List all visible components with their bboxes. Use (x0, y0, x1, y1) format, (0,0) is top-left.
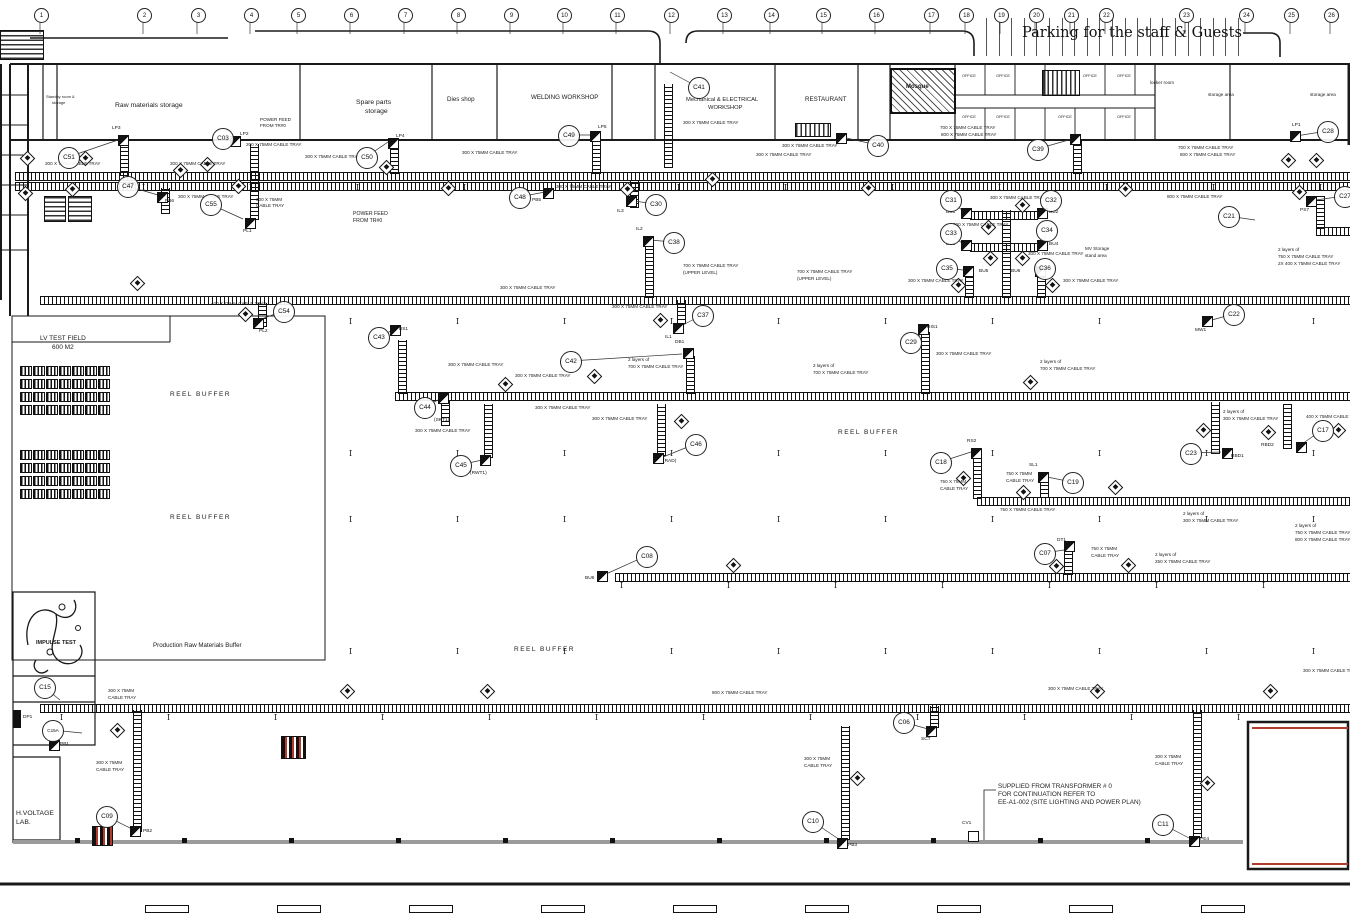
text-label: OFFICE (1083, 74, 1097, 78)
device-tag: PB2 (143, 830, 152, 835)
parking-stall-line (1011, 18, 1012, 56)
text-label: H.VOLTAGE (16, 810, 54, 817)
cable-tray-vertical (645, 246, 654, 298)
text-label: CABLE TRAY (1155, 762, 1183, 767)
text-label: 2 layers of (813, 364, 834, 369)
text-label: 400 X 75MM CABLE TRAY (1306, 415, 1350, 420)
column-mark: I (670, 516, 673, 524)
device-tag: PL1 (243, 230, 252, 235)
column-mark: I (1105, 184, 1108, 192)
cable-tray-vertical (1211, 402, 1220, 454)
text-label: OFFICE (996, 74, 1010, 78)
column-mark: I (670, 648, 673, 656)
column-mark: I (1212, 184, 1215, 192)
column-mark: I (595, 714, 598, 722)
hatched-area (795, 123, 831, 137)
grid-bubble: 13 (717, 8, 732, 23)
callout-C36: C36 (1034, 258, 1056, 280)
callout-C18: C18 (930, 452, 952, 474)
cable-tray-horizontal (615, 573, 1350, 582)
grid-bubble: 2 (137, 8, 152, 23)
text-label: 300 X 75MM CABLE TRAY (462, 151, 518, 156)
text-label: Mosque (906, 84, 929, 90)
callout-C06: C06 (893, 712, 915, 734)
exterior-bay (805, 905, 849, 913)
device-tag: BU4 (1049, 243, 1058, 248)
column-mark: I (1098, 318, 1101, 326)
text-label: 700 X 75MM CABLE TRAY (1178, 146, 1234, 151)
device-tag: DP1 (23, 716, 32, 721)
text-label: 600 M2 (52, 345, 74, 352)
callout-C34: C34 (1036, 220, 1058, 242)
exterior-bay (277, 905, 321, 913)
cable-tray-vertical (1040, 482, 1049, 498)
test-rack-icon (85, 476, 97, 486)
column-mark: I (456, 516, 459, 524)
hatched-area (0, 30, 44, 60)
test-rack-icon (85, 489, 97, 499)
column-mark: I (784, 184, 787, 192)
test-rack-icon (20, 463, 32, 473)
text-label: locker room (1150, 81, 1174, 86)
cable-tray-vertical (484, 404, 493, 458)
text-label: 700 X 75MM CABLE TRAY (797, 270, 853, 275)
callout-C51: C51 (58, 147, 80, 169)
cable-tray-vertical (120, 142, 129, 176)
device-box-icon (1306, 196, 1317, 207)
text-label: FROM TR#0 (353, 219, 382, 224)
device-box-icon (1296, 442, 1307, 453)
text-label: LV TEST FIELD (40, 336, 86, 343)
device-tag: LP2 (240, 133, 249, 138)
column-mark: I (1048, 582, 1051, 590)
wall-column-dot (75, 838, 80, 843)
text-label: REEL BUFFER (514, 647, 575, 654)
device-box-icon (683, 348, 694, 359)
callout-C35: C35 (936, 258, 958, 280)
test-rack-icon (33, 392, 45, 402)
text-label: 300 X 75MM CABLE TRAY (415, 429, 471, 434)
test-rack-icon (85, 392, 97, 402)
text-label: CABLE TRAY (1091, 554, 1119, 559)
text-label: 750 X 75MM CABLE TRAY (1000, 508, 1056, 513)
column-mark: I (884, 318, 887, 326)
column-mark: I (1205, 648, 1208, 656)
device-box-icon (1070, 134, 1081, 145)
device-tag: RS2 (967, 440, 976, 445)
test-rack-icon (72, 379, 84, 389)
test-rack-icon (98, 489, 110, 499)
text-label: 700 X 75MM CABLE TRAY (940, 126, 996, 131)
column-mark: I (456, 318, 459, 326)
grid-bubble: 6 (344, 8, 359, 23)
device-box-icon (1038, 472, 1049, 483)
callout-C10: C10 (802, 811, 824, 833)
impulse-generator-sketch (27, 600, 82, 673)
device-box-icon (438, 393, 449, 404)
test-rack-icon (20, 405, 32, 415)
test-rack-icon (33, 379, 45, 389)
text-label: 800 X 75MM CABLE TRAY (941, 133, 997, 138)
device-box-icon (961, 240, 972, 251)
device-tag: DT1 (1057, 539, 1066, 544)
device-box-icon (971, 448, 982, 459)
text-label: 750 X 75MM (1006, 472, 1032, 477)
callout-C07: C07 (1034, 543, 1056, 565)
test-rack-icon (85, 379, 97, 389)
column-mark: I (1237, 714, 1240, 722)
cable-tray-horizontal (15, 172, 1350, 181)
column-mark: I (891, 184, 894, 192)
wall-column-dot (1145, 838, 1150, 843)
text-label: Production Raw Materials Buffer (153, 643, 242, 650)
text-label: CABLE TRAY (1006, 479, 1034, 484)
grid-bubble: 4 (244, 8, 259, 23)
text-label: REEL BUFFER (838, 430, 899, 437)
text-label: storage area (1208, 93, 1234, 98)
device-box-icon (963, 266, 974, 277)
column-mark: I (702, 714, 705, 722)
text-label: MV Storage (1085, 247, 1109, 252)
callout-C29: C29 (900, 332, 922, 354)
text-label: 800 X 75MM CABLE TRAY (1180, 153, 1236, 158)
callout-C27: C27 (1334, 186, 1350, 208)
test-rack-icon (20, 476, 32, 486)
panel-block (13, 710, 21, 728)
device-box-icon (626, 196, 637, 207)
text-label: (UPPER LEVEL) (683, 271, 717, 276)
wall-column-dot (931, 838, 936, 843)
text-label: 700 X 75MM CABLE TRAY (628, 365, 684, 370)
text-label: Spare parts (356, 99, 391, 106)
callout-C55: C55 (200, 194, 222, 216)
exterior-bay (1069, 905, 1113, 913)
callout-C46: C46 (685, 434, 707, 456)
callout-C30: C30 (645, 194, 667, 216)
device-tag: SCT (921, 738, 931, 743)
parking-stall-line (999, 18, 1000, 56)
text-label: 2 layers of (1040, 360, 1061, 365)
test-rack-icon (59, 405, 71, 415)
device-tag: LP3 (112, 127, 121, 132)
test-rack-icon (20, 489, 32, 499)
device-tag: (RAD) (663, 460, 676, 465)
text-label: 300 X 75MM CABLE TRAY (500, 286, 556, 291)
test-rack-icon (98, 366, 110, 376)
text-label: storage area (1310, 93, 1336, 98)
text-label: 300 X 75MM CABLE TRAY (936, 352, 992, 357)
column-mark: I (349, 648, 352, 656)
callout-C38: C38 (663, 232, 685, 254)
column-mark: I (1130, 714, 1133, 722)
text-label: 750 X 75MM (1091, 547, 1117, 552)
text-label: Raw materials storage (115, 102, 183, 109)
text-label: OFFICE (1117, 74, 1131, 78)
callout-C49: C49 (558, 125, 580, 147)
device-tag: DB1 (675, 341, 684, 346)
grid-bubble: 23 (1179, 8, 1194, 23)
test-rack-icon (59, 476, 71, 486)
grid-bubble: 22 (1099, 8, 1114, 23)
device-tag: (SKT1) (434, 419, 449, 424)
text-label: REEL BUFFER (170, 392, 231, 399)
equipment-block (281, 736, 306, 759)
cable-tray-vertical (133, 710, 142, 832)
text-label: 700 X 75MM CABLE TRAY (683, 264, 739, 269)
text-label: Standby room & (46, 95, 75, 99)
cable-tray-vertical (841, 726, 850, 840)
text-label: 300 X 75MM (108, 689, 134, 694)
text-label: 800 X 75MM CABLE TRAY (712, 691, 768, 696)
test-rack-icon (33, 476, 45, 486)
exterior-bay (541, 905, 585, 913)
test-rack-icon (20, 450, 32, 460)
device-tag: IL3 (617, 210, 624, 215)
cable-tray-vertical (677, 300, 686, 324)
column-mark: I (998, 184, 1001, 192)
callout-C33: C33 (940, 223, 962, 245)
text-label: LAB. (16, 819, 31, 826)
cable-tray-horizontal (395, 392, 1350, 401)
text-label: OFFICE (1117, 115, 1131, 119)
test-rack-icon (46, 379, 58, 389)
text-label: 2 layers of (1155, 553, 1176, 558)
text-label: storage (365, 108, 388, 115)
device-box-icon (597, 571, 608, 582)
device-tag: (RWT1) (470, 472, 487, 477)
text-label: CABLE TRAY (96, 768, 124, 773)
parking-title: Parking for the staff & Guests (1022, 25, 1242, 41)
parking-stall-line (986, 18, 987, 56)
column-mark: I (274, 714, 277, 722)
wall-column-dot (396, 838, 401, 843)
grid-bubble: 24 (1239, 8, 1254, 23)
text-label: POWER FEED (353, 212, 388, 217)
callout-C03: C03 (212, 128, 234, 150)
text-label: WELDING WORKSHOP (531, 95, 598, 102)
text-label: 300 X 75MM CABLE TRAY (908, 279, 964, 284)
hatched-area (890, 68, 956, 114)
device-box-icon (1290, 131, 1301, 142)
hatched-area (44, 196, 66, 222)
text-label: 300 X 75MM CABLE TRAY (535, 406, 591, 411)
text-label: CABLE TRAY (940, 487, 968, 492)
column-mark: I (563, 516, 566, 524)
cable-tray-vertical (592, 140, 601, 174)
text-label: 300 X 75MM CABLE TRAY (1303, 669, 1350, 674)
column-mark: I (356, 184, 359, 192)
cable-tray-vertical (1073, 140, 1082, 174)
column-mark: I (1312, 648, 1315, 656)
grid-bubble: 25 (1284, 8, 1299, 23)
test-rack-icon (46, 392, 58, 402)
device-box-icon (837, 838, 848, 849)
text-label: 300 X 75MM CABLE TRAY (782, 144, 838, 149)
text-label: 300 X 75MM CABLE TRAY (515, 374, 571, 379)
device-tag: LP4 (396, 135, 405, 140)
wall-column-dot (1038, 838, 1043, 843)
column-mark: I (60, 714, 63, 722)
column-mark: I (1312, 318, 1315, 326)
device-tag: LP5 (598, 126, 607, 131)
text-label: OFFICE (962, 74, 976, 78)
device-box-icon (836, 133, 847, 144)
device-box-icon (1189, 836, 1200, 847)
column-mark: I (249, 184, 252, 192)
callout-C23: C23 (1180, 443, 1202, 465)
column-mark: I (620, 582, 623, 590)
test-rack-icon (46, 463, 58, 473)
column-mark: I (1262, 582, 1265, 590)
device-tag: PL2 (259, 330, 268, 335)
column-mark: I (563, 450, 566, 458)
text-label: 300 X 75MM CABLE TRAY (305, 155, 361, 160)
wall-column-dot (824, 838, 829, 843)
test-rack-icon (46, 366, 58, 376)
test-rack-icon (59, 463, 71, 473)
text-label: 300 X 75MM CABLE TRAY (990, 196, 1046, 201)
text-label: 800 X 75MM CABLE TRAY (1167, 195, 1223, 200)
cable-tray-vertical (1316, 196, 1325, 229)
device-tag: LP1 (1292, 124, 1301, 129)
exterior-bay (673, 905, 717, 913)
wall-column-dot (289, 838, 294, 843)
device-tag: PS7 (1300, 209, 1309, 214)
text-label: 300 X 75MM CABLE TRAY (1223, 417, 1279, 422)
test-rack-icon (33, 463, 45, 473)
callout-C54: C54 (273, 301, 295, 323)
test-rack-icon (72, 476, 84, 486)
grid-bubble: 9 (504, 8, 519, 23)
column-mark: I (777, 318, 780, 326)
column-mark: I (941, 582, 944, 590)
cable-tray-horizontal (977, 497, 1350, 506)
hatched-area (1042, 70, 1080, 96)
device-tag: MW1 (1195, 329, 1206, 334)
callout-C22: C22 (1223, 304, 1245, 326)
grid-bubble: 8 (451, 8, 466, 23)
column-mark: I (142, 184, 145, 192)
column-mark: I (167, 714, 170, 722)
exterior-wall (13, 840, 1243, 844)
column-mark: I (488, 714, 491, 722)
column-mark: I (349, 318, 352, 326)
text-label: 300 X 75MM CABLE TRAY (1048, 687, 1104, 692)
device-box-icon (673, 323, 684, 334)
test-rack-icon (85, 366, 97, 376)
column-mark: I (991, 516, 994, 524)
device-tag: BU6 (1011, 270, 1020, 275)
text-label: 300 X 75MM (804, 757, 830, 762)
hatched-area (68, 196, 92, 222)
text-label: 300 X 75MM CABLE TRAY (1183, 519, 1239, 524)
grid-bubble: 21 (1064, 8, 1079, 23)
callout-C11: C11 (1152, 814, 1174, 836)
text-label: 800 X 75MM CABLE TRAY (1295, 538, 1350, 543)
callout-C47: C47 (117, 176, 139, 198)
device-tag: PB1 (60, 743, 69, 748)
column-mark: I (884, 648, 887, 656)
callout-C40: C40 (867, 135, 889, 157)
column-mark: I (884, 450, 887, 458)
text-label: 300 X 75MM CABLE TRAY (170, 162, 226, 167)
column-mark: I (777, 648, 780, 656)
cable-tray-vertical (686, 356, 695, 394)
column-mark: I (1319, 184, 1322, 192)
wall-column-dot (610, 838, 615, 843)
callout-C50: C50 (356, 147, 378, 169)
exterior-bay (937, 905, 981, 913)
callout-C08: C08 (636, 546, 658, 568)
callout-C09: C09 (96, 806, 118, 828)
cable-tray-horizontal (40, 704, 1350, 713)
text-label: REEL BUFFER (170, 515, 231, 522)
text-label: 700 X 75MM CABLE TRAY (1040, 367, 1096, 372)
column-mark: I (1205, 450, 1208, 458)
grid-bubble: 3 (191, 8, 206, 23)
text-label: 2X 400 X 75MM CABLE TRAY (1278, 262, 1340, 267)
text-label: 300 X 75MM CABLE TRAY (592, 417, 648, 422)
column-mark: I (777, 450, 780, 458)
test-rack-icon (59, 489, 71, 499)
text-label: 300 X 75MM CABLE TRAY (683, 121, 739, 126)
cable-tray-horizontal (15, 182, 1350, 191)
text-label: 750 X 75MM CABLE TRAY (1295, 531, 1350, 536)
text-label: 200 X 75MM CABLE TRAY (246, 143, 302, 148)
column-mark: I (349, 516, 352, 524)
device-tag: CV1 (962, 822, 971, 827)
grid-bubble: 15 (816, 8, 831, 23)
callout-C37: C37 (692, 305, 714, 327)
note-line-3: EE-A1-002 (SITE LIGHTING AND POWER PLAN) (998, 799, 1141, 807)
text-label: storage (52, 101, 65, 105)
wall-column-dot (182, 838, 187, 843)
test-rack-icon (72, 489, 84, 499)
text-label: 750 X 75MM (940, 480, 966, 485)
test-rack-icon (72, 366, 84, 376)
grid-bubble: 19 (994, 8, 1009, 23)
column-mark: I (381, 714, 384, 722)
device-tag: PB3 (848, 844, 857, 849)
text-label: OFFICE (962, 115, 976, 119)
test-rack-icon (46, 489, 58, 499)
device-box-icon (253, 318, 264, 329)
text-label: OFFICE (1058, 115, 1072, 119)
text-label: RESTAURANT (805, 97, 846, 104)
column-mark: I (1098, 450, 1101, 458)
device-tag: BS1 (399, 328, 408, 333)
text-label: 300 X 75MM CABLE TRAY (448, 363, 504, 368)
grid-bubble: 7 (398, 8, 413, 23)
callout-C28: C28 (1317, 121, 1339, 143)
callout-C15: C15 (34, 677, 56, 699)
test-rack-icon (98, 379, 110, 389)
text-label: IMPULSE TEST (36, 641, 76, 647)
column-mark: I (1098, 648, 1101, 656)
device-box-icon (245, 218, 256, 229)
column-mark: I (727, 582, 730, 590)
callout-C39: C39 (1027, 139, 1049, 161)
red-wall-line (1252, 863, 1348, 865)
callout-C44: C44 (414, 397, 436, 419)
device-tag: PB6 (165, 200, 174, 205)
exterior-bay (409, 905, 453, 913)
device-box-icon (480, 455, 491, 466)
cable-tray-vertical (930, 706, 939, 728)
callout-C21: C21 (1218, 206, 1240, 228)
cable-tray-vertical (657, 404, 666, 456)
device-box-icon (643, 236, 654, 247)
